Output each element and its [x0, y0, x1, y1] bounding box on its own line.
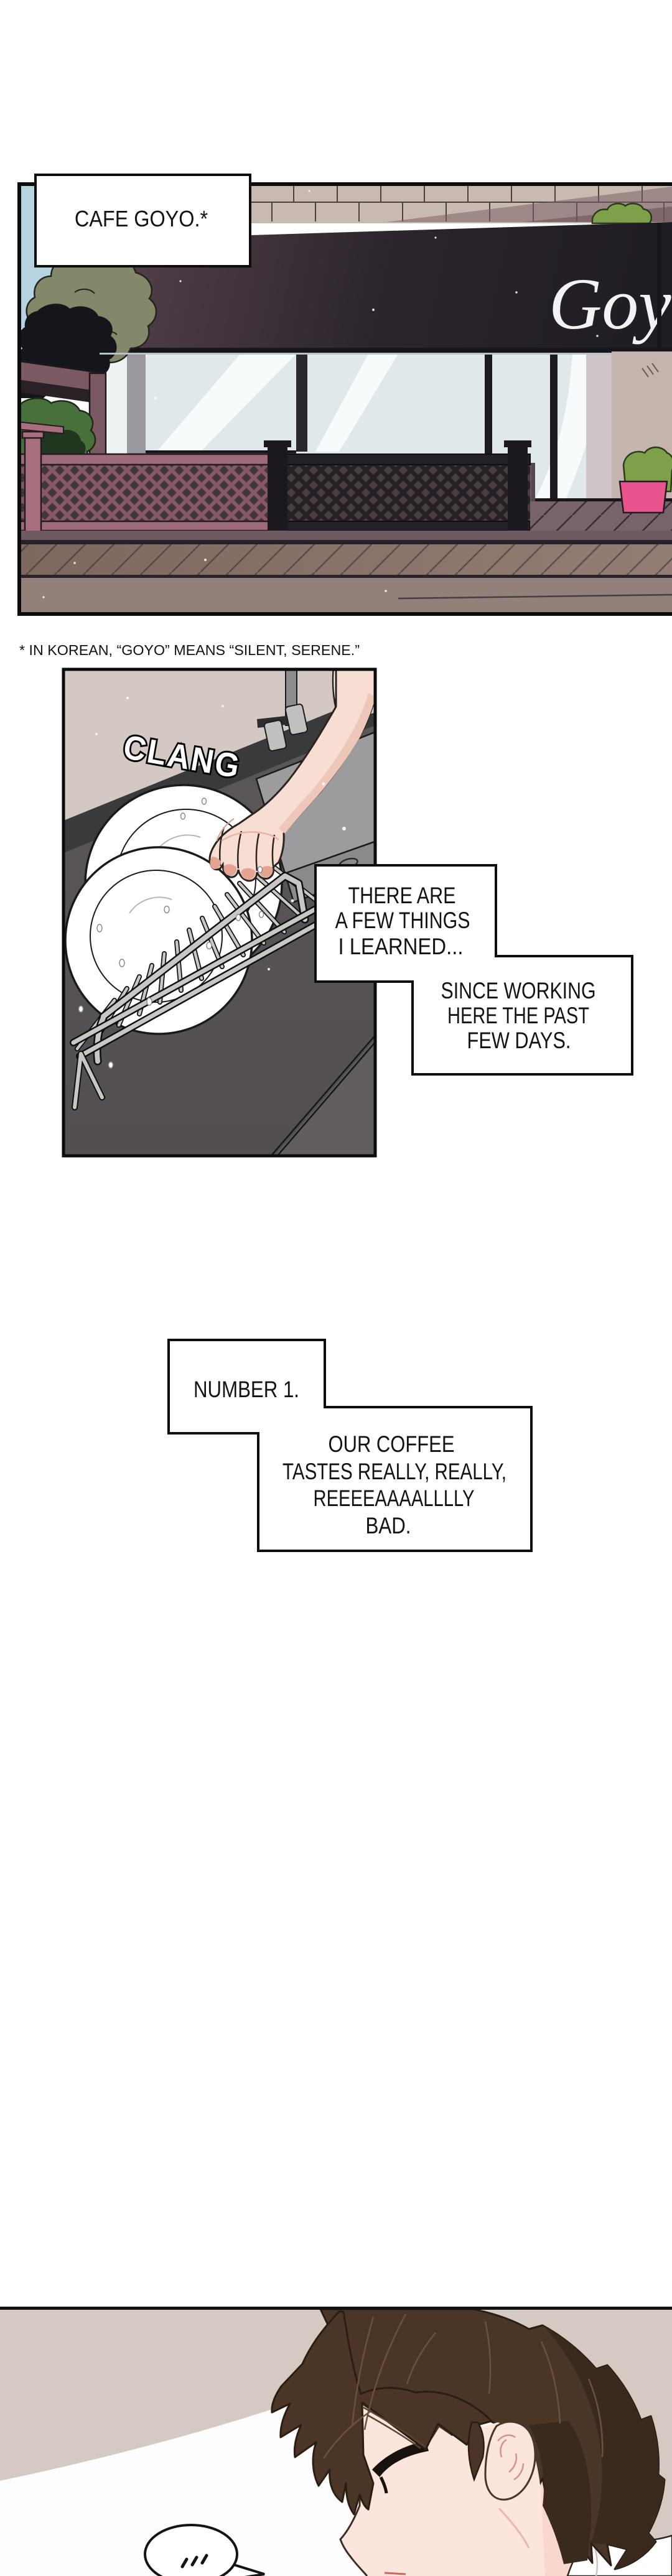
svg-text:CAFE GOYO.*: CAFE GOYO.* — [75, 207, 208, 231]
svg-text:* IN KOREAN, “GOYO” MEANS “SIL: * IN KOREAN, “GOYO” MEANS “SILENT, SEREN… — [19, 642, 360, 658]
svg-text:REEEEAAAALLLLY: REEEEAAAALLLLY — [313, 1486, 474, 1512]
svg-text:Goyo: Goyo — [549, 263, 672, 345]
svg-text:NUMBER 1.: NUMBER 1. — [194, 1377, 299, 1403]
svg-text:THERE ARE: THERE ARE — [348, 883, 456, 908]
svg-text:SINCE WORKING: SINCE WORKING — [441, 978, 595, 1004]
svg-text:BAD.: BAD. — [366, 1514, 411, 1539]
svg-text:A FEW THINGS: A FEW THINGS — [335, 908, 470, 934]
svg-text:HERE THE PAST: HERE THE PAST — [447, 1003, 589, 1029]
svg-text:TASTES REALLY, REALLY,: TASTES REALLY, REALLY, — [282, 1459, 506, 1485]
svg-text:FEW DAYS.: FEW DAYS. — [467, 1028, 571, 1053]
svg-text:OUR COFFEE: OUR COFFEE — [329, 1431, 455, 1457]
svg-text:I LEARNED...: I LEARNED... — [338, 934, 463, 959]
